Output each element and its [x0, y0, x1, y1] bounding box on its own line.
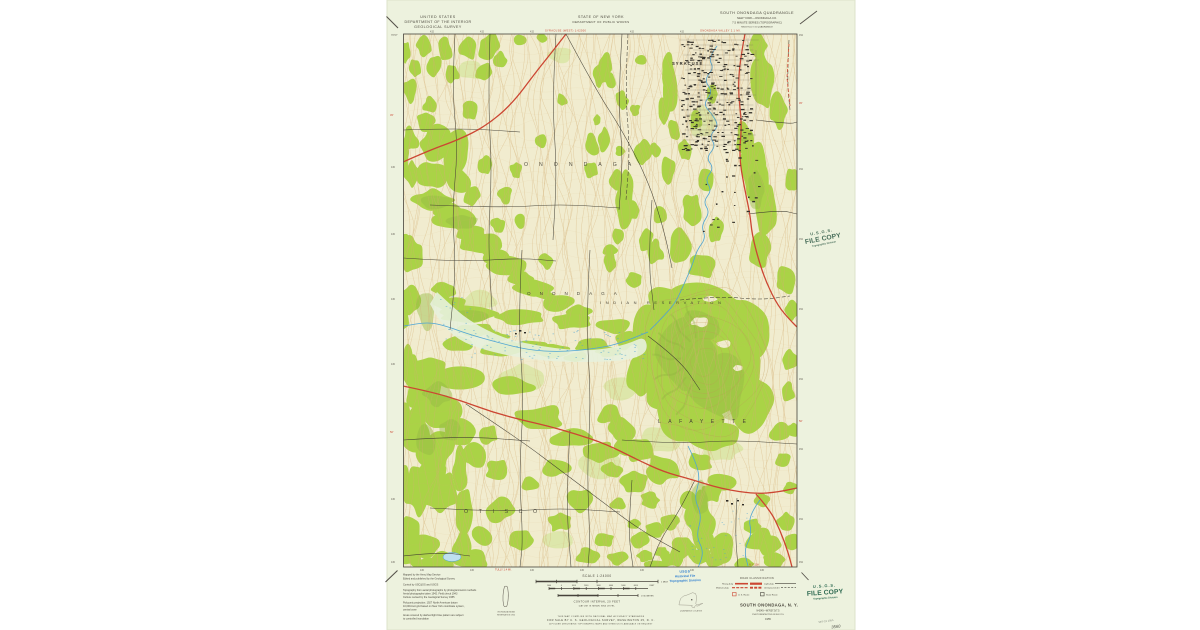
svg-text:THIS MAP COMPLIES WITH NATIONA: THIS MAP COMPLIES WITH NATIONAL MAP ACCU… [558, 615, 645, 618]
svg-text:DATUM IS MEAN SEA LEVEL: DATUM IS MEAN SEA LEVEL [579, 605, 616, 608]
svg-text:FEET: FEET [650, 585, 656, 587]
svg-text:452: 452 [799, 238, 804, 241]
svg-text:452: 452 [799, 378, 804, 381]
svg-text:FOR SALE BY U. S. GEOLOGICAL S: FOR SALE BY U. S. GEOLOGICAL SURVEY, WAS… [547, 618, 655, 622]
svg-text:0: 0 [561, 585, 562, 587]
svg-text:1955: 1955 [765, 617, 771, 621]
svg-text:1 KILOMETER: 1 KILOMETER [641, 596, 654, 598]
svg-text:Light-duty: Light-duty [764, 583, 775, 586]
svg-text:430: 430 [690, 569, 695, 572]
svg-text:STATE OF NEW YORK: STATE OF NEW YORK [578, 15, 624, 19]
svg-text:SOUTH ONONDAGA, N. Y.: SOUTH ONONDAGA, N. Y. [740, 603, 798, 608]
svg-text:SOUTH ONONDAGA QUADRANGLE: SOUTH ONONDAGA QUADRANGLE [720, 11, 794, 15]
svg-text:432: 432 [630, 31, 635, 34]
svg-text:430: 430 [391, 498, 396, 501]
svg-text:50′: 50′ [390, 430, 394, 434]
svg-text:ONONDAGA: ONONDAGA [524, 162, 642, 168]
svg-text:U. S. Route: U. S. Route [738, 594, 750, 597]
svg-text:ONONDAGA VALLEY 2.1 MI.: ONONDAGA VALLEY 2.1 MI. [700, 29, 741, 33]
svg-text:PHOTOINSPECTED IN NJ-17-5: PHOTOINSPECTED IN NJ-17-5 [752, 614, 784, 616]
svg-text:432: 432 [680, 31, 685, 34]
svg-text:N.Y. 11A: N.Y. 11A [749, 563, 759, 567]
svg-text:430: 430 [760, 569, 765, 572]
svg-text:GEOLOGICAL SURVEY: GEOLOGICAL SURVEY [414, 25, 462, 29]
svg-text:Unimproved dirt: Unimproved dirt [764, 587, 780, 590]
svg-text:to controlled inundation: to controlled inundation [403, 618, 429, 621]
svg-text:ONONDAGA: ONONDAGA [527, 291, 626, 296]
svg-text:DEPARTMENT OF THE INTERIOR: DEPARTMENT OF THE INTERIOR [404, 20, 471, 24]
svg-text:430: 430 [391, 233, 396, 236]
svg-text:452: 452 [799, 308, 804, 311]
svg-text:452: 452 [799, 34, 804, 37]
svg-text:SYRACUSE: SYRACUSE [672, 61, 703, 66]
svg-text:4000: 4000 [609, 585, 613, 587]
svg-text:45′: 45′ [799, 101, 803, 105]
svg-text:430: 430 [530, 569, 535, 572]
svg-text:3560: 3560 [831, 623, 841, 629]
svg-text:RESERVATION 1950: RESERVATION 1950 [497, 614, 515, 617]
svg-text:State Route: State Route [766, 594, 778, 597]
svg-text:50′: 50′ [799, 419, 803, 423]
svg-text:NW/4 TULLY 15 QUADRANGLE: NW/4 TULLY 15 QUADRANGLE [741, 26, 773, 29]
svg-text:432: 432 [480, 31, 485, 34]
svg-text:Culture revised by the Geologi: Culture revised by the Geological Survey… [403, 596, 455, 599]
svg-text:N4245—W7607.5/7.5: N4245—W7607.5/7.5 [757, 610, 781, 613]
svg-text:OTISCO: OTISCO [464, 509, 548, 515]
svg-text:INDIAN RESERVATION: INDIAN RESERVATION [600, 300, 725, 305]
svg-text:ROAD CLASSIFICATION: ROAD CLASSIFICATION [740, 577, 774, 580]
svg-text:central zone: central zone [403, 609, 417, 612]
svg-text:DEPARTMENT OF PUBLIC WORKS: DEPARTMENT OF PUBLIC WORKS [573, 20, 630, 24]
svg-text:TULLY 1.4 MI.: TULLY 1.4 MI. [495, 568, 512, 572]
svg-text:452: 452 [799, 168, 804, 171]
svg-text:430: 430 [470, 569, 475, 572]
svg-text:5000: 5000 [621, 585, 625, 587]
svg-text:1000: 1000 [547, 585, 551, 587]
svg-text:430: 430 [640, 569, 645, 572]
svg-text:452: 452 [799, 518, 804, 521]
svg-text:430: 430 [391, 363, 396, 366]
svg-text:430: 430 [580, 569, 585, 572]
svg-text:Heavy-duty: Heavy-duty [722, 583, 734, 586]
svg-text:ONONDAGA INDIAN: ONONDAGA INDIAN [497, 611, 515, 614]
svg-text:UNITED STATES: UNITED STATES [420, 15, 456, 19]
svg-text:430: 430 [391, 298, 396, 301]
svg-text:432: 432 [530, 31, 535, 34]
svg-text:76°07': 76°07' [391, 34, 398, 37]
svg-text:LAFAYETTE: LAFAYETTE [658, 419, 753, 425]
svg-text:QUADRANGLE LOCATION: QUADRANGLE LOCATION [680, 610, 703, 613]
svg-text:Medium-duty: Medium-duty [716, 587, 730, 590]
svg-text:432: 432 [430, 31, 435, 34]
svg-text:A FOLDER DESCRIBING TOPOGRAPHI: A FOLDER DESCRIBING TOPOGRAPHIC MAPS AND… [549, 623, 653, 626]
svg-text:430: 430 [391, 166, 396, 169]
svg-text:6000: 6000 [634, 585, 638, 587]
svg-text:1000: 1000 [572, 585, 576, 587]
svg-text:3000: 3000 [596, 585, 600, 587]
svg-text:452: 452 [799, 561, 804, 564]
svg-text:SYRACUSE (WEST) 1:62500: SYRACUSE (WEST) 1:62500 [545, 29, 586, 33]
svg-text:CONTOUR INTERVAL 20 FEET: CONTOUR INTERVAL 20 FEET [574, 600, 621, 604]
svg-text:Edited and published by the Ge: Edited and published by the Geological S… [403, 578, 456, 581]
svg-text:Mapped by the Army Map Service: Mapped by the Army Map Service [403, 574, 441, 577]
svg-text:430: 430 [391, 561, 396, 564]
svg-text:430: 430 [420, 569, 425, 572]
svg-text:45′: 45′ [390, 113, 394, 117]
svg-text:1 MILE: 1 MILE [661, 582, 668, 584]
svg-text:SCALE 1:24000: SCALE 1:24000 [582, 574, 611, 578]
svg-text:452: 452 [799, 448, 804, 451]
svg-text:7.5 MINUTE SERIES (TOPOGRAPHIC: 7.5 MINUTE SERIES (TOPOGRAPHIC) [732, 21, 782, 25]
svg-text:Control by USC&GS and USGS: Control by USC&GS and USGS [403, 584, 439, 587]
svg-text:NEW YORK—ONONDAGA CO.: NEW YORK—ONONDAGA CO. [737, 16, 777, 20]
svg-text:2000: 2000 [584, 585, 588, 587]
